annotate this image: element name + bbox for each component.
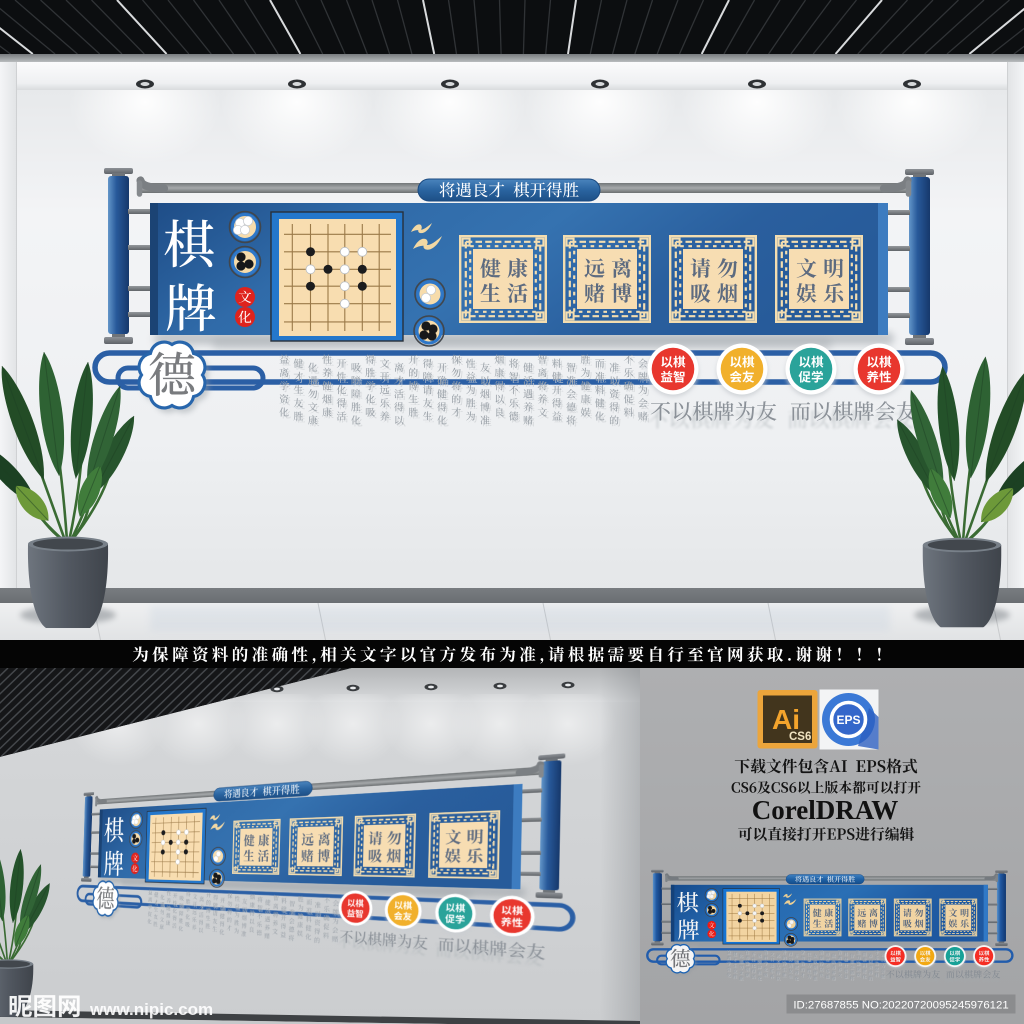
svg-text:CS6: CS6 — [789, 731, 811, 743]
svg-text:ID:27687855 NO:202207200952459: ID:27687855 NO:20220720095245976121 — [793, 1000, 1008, 1012]
svg-text:EPS: EPS — [836, 713, 860, 727]
svg-text:CorelDRAW: CorelDRAW — [752, 795, 898, 825]
